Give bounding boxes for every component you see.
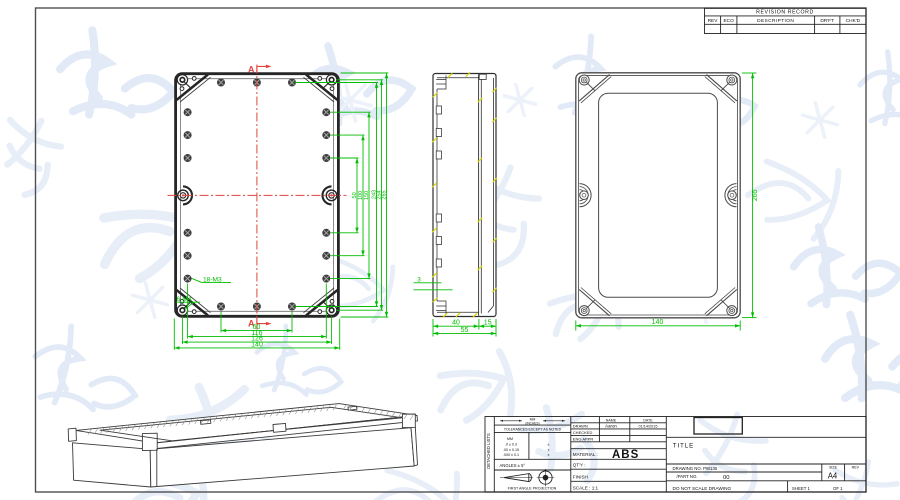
svg-text:MM: MM <box>507 437 513 441</box>
svg-text:SHEET 1: SHEET 1 <box>792 486 810 491</box>
svg-text:REVISION RECORD: REVISION RECORD <box>756 10 814 16</box>
svg-text:DETACHED LISTS: DETACHED LISTS <box>486 433 491 469</box>
svg-text:QT'Y :: QT'Y : <box>573 462 586 467</box>
svg-text:±: ± <box>548 453 550 457</box>
svg-text:00: 00 <box>723 475 729 481</box>
svg-text:ANGLES ± 5°: ANGLES ± 5° <box>500 463 526 468</box>
svg-text:DESCRIPTION: DESCRIPTION <box>757 18 794 24</box>
svg-text:DRAWN: DRAWN <box>573 423 588 428</box>
svg-text:±: ± <box>548 443 550 447</box>
svg-text:DO NOT SCALE DRAWING: DO NOT SCALE DRAWING <box>673 486 732 491</box>
svg-text:15: 15 <box>484 320 492 327</box>
svg-text:(INCHES): (INCHES) <box>525 421 539 425</box>
svg-text:Aaron: Aaron <box>605 424 617 429</box>
svg-text:ENG APPR: ENG APPR <box>573 436 594 441</box>
svg-text:±: ± <box>548 448 550 452</box>
svg-text:265: 265 <box>752 189 759 201</box>
svg-text:40: 40 <box>452 320 460 327</box>
svg-text:SIZE: SIZE <box>829 466 838 470</box>
svg-text:/PART NO.: /PART NO. <box>677 474 698 479</box>
svg-text:TITLE: TITLE <box>673 443 694 449</box>
svg-text:TOLERANCES EXCEPT AS NOTED: TOLERANCES EXCEPT AS NOTED <box>504 427 562 431</box>
svg-text:DRAWING NO. PW135: DRAWING NO. PW135 <box>673 466 718 471</box>
svg-text:REV: REV <box>708 18 719 24</box>
svg-text:.0 ± 0.3: .0 ± 0.3 <box>505 443 517 447</box>
svg-text:140: 140 <box>251 341 263 348</box>
svg-text:DATE: DATE <box>643 418 653 422</box>
svg-text:MATERIAL :: MATERIAL : <box>573 452 598 457</box>
svg-text:SCALE : 1:1: SCALE : 1:1 <box>573 486 599 491</box>
svg-text:140: 140 <box>652 319 664 326</box>
svg-text:18-M3: 18-M3 <box>203 277 222 284</box>
svg-text:55: 55 <box>461 327 469 334</box>
svg-text:NAME: NAME <box>606 418 617 422</box>
svg-text:265: 265 <box>381 190 387 199</box>
svg-text:.00 ± 0.15: .00 ± 0.15 <box>503 448 519 452</box>
svg-text:01/14/2015: 01/14/2015 <box>638 424 657 428</box>
svg-text:ECO: ECO <box>723 18 734 24</box>
svg-text:CHECKED: CHECKED <box>573 430 593 435</box>
svg-text:CHK'D: CHK'D <box>846 18 861 24</box>
svg-text:A4: A4 <box>828 472 838 481</box>
svg-text:.000 ± 0.1: .000 ± 0.1 <box>503 453 519 457</box>
svg-text:ABS: ABS <box>612 449 639 461</box>
svg-text:150: 150 <box>364 191 370 200</box>
svg-text:FIRST ANGLE PROJECTION: FIRST ANGLE PROJECTION <box>508 486 557 490</box>
svg-text:DR'FT: DR'FT <box>820 18 834 24</box>
svg-text:FINISH: FINISH <box>573 474 588 479</box>
svg-text:A: A <box>248 65 255 75</box>
svg-text:REV: REV <box>852 466 860 470</box>
svg-text:6-M4: 6-M4 <box>177 296 192 303</box>
svg-text:OF 1: OF 1 <box>833 486 843 491</box>
